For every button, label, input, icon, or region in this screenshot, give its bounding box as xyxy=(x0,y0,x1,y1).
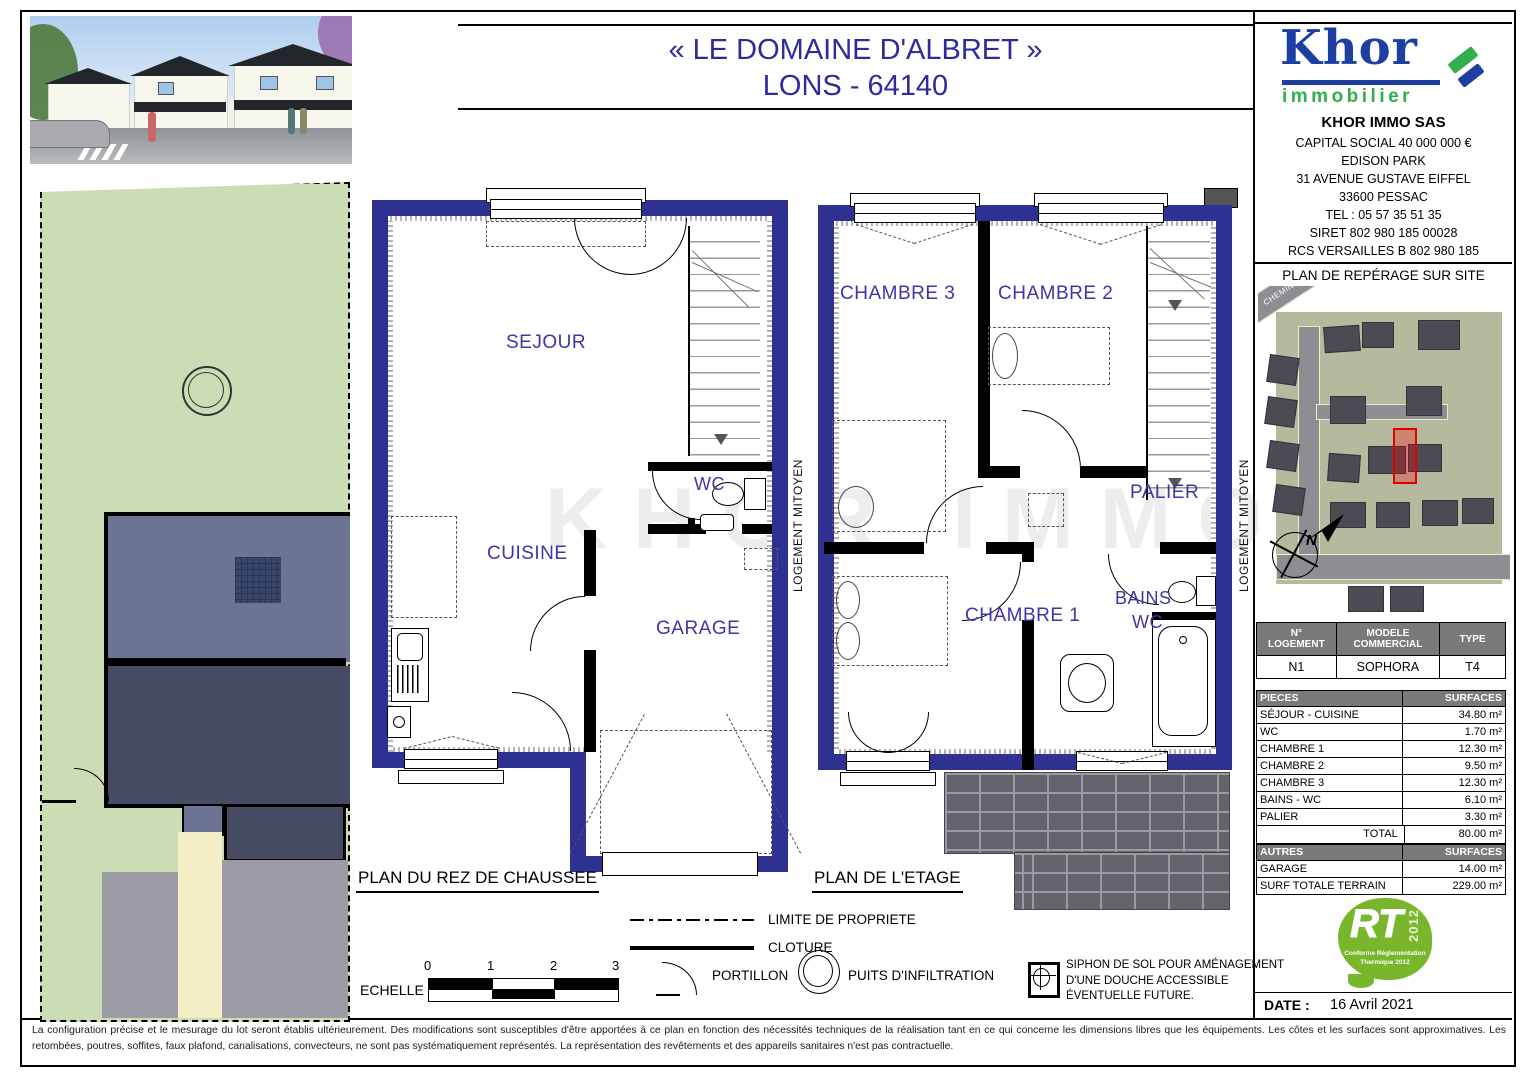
unit-number: N1 xyxy=(1257,656,1337,678)
company-line: CAPITAL SOCIAL 40 000 000 € xyxy=(1255,136,1512,150)
appliance xyxy=(387,706,411,738)
piece-surface: 1.70 m² xyxy=(1403,724,1506,740)
fence-symbol xyxy=(630,946,754,950)
autre-label: GARAGE xyxy=(1257,861,1403,877)
autres-table: AUTRES SURFACES GARAGE14.00 m² SURF TOTA… xyxy=(1256,844,1506,895)
development-render-photo xyxy=(30,16,352,164)
company-line: EDISON PARK xyxy=(1255,154,1512,168)
toilet-tank xyxy=(744,478,766,510)
wall-segment xyxy=(1160,542,1216,554)
map-house xyxy=(1376,502,1410,528)
date-label: DATE : xyxy=(1264,997,1310,1013)
map-house xyxy=(1348,586,1384,612)
room-label-cuisine: CUISINE xyxy=(487,543,568,565)
rt2012-main: RT xyxy=(1350,902,1403,947)
scale-tick-1: 1 xyxy=(487,958,494,973)
khor-logo: Khor immobilier xyxy=(1262,26,1506,110)
scale-bar xyxy=(428,978,619,1002)
company-line: RCS VERSAILLES B 802 980 185 xyxy=(1255,244,1512,258)
etage-plan-title: PLAN DE L'ETAGE xyxy=(812,868,963,893)
company-line: TEL : 05 57 35 51 35 xyxy=(1255,208,1512,222)
company-line: SIRET 802 980 185 00028 xyxy=(1255,226,1512,240)
site-map-title: PLAN DE REPÉRAGE SUR SITE xyxy=(1255,268,1512,283)
scale-seg xyxy=(492,989,555,999)
company-line: 33600 PESSAC xyxy=(1255,190,1512,204)
bathtub xyxy=(1152,619,1216,747)
map-house xyxy=(1390,586,1424,612)
map-house xyxy=(1266,440,1300,472)
wall-segment xyxy=(570,752,586,872)
stair-arrow xyxy=(1168,300,1182,311)
piece-surface: 12.30 m² xyxy=(1403,741,1506,757)
total-label: TOTAL xyxy=(1257,826,1405,843)
window xyxy=(260,76,278,90)
unit-table: N°LOGEMENT MODELECOMMERCIAL TYPE N1 SOPH… xyxy=(1256,622,1506,679)
map-house xyxy=(1272,484,1306,516)
kitchen-window xyxy=(404,749,498,769)
sink-bowl xyxy=(397,633,423,661)
floorplan-document: « LE DOMAINE D'ALBRET » LONS - 64140 KHO… xyxy=(0,0,1527,1079)
map-house xyxy=(1327,453,1361,483)
scale-tick-3: 3 xyxy=(612,958,619,973)
pillow xyxy=(838,486,874,528)
piece-surface: 3.30 m² xyxy=(1403,809,1506,825)
ch1-window xyxy=(846,751,930,771)
piece-label: SÉJOUR - CUISINE xyxy=(1257,707,1403,723)
cupboard-dashed xyxy=(1028,493,1064,527)
washbasin xyxy=(1060,654,1114,712)
pieces-table: PIECES SURFACES SÉJOUR - CUISINE34.80 m²… xyxy=(1256,690,1506,844)
unit-type: T4 xyxy=(1440,656,1506,678)
hdr: MODELE xyxy=(1337,628,1439,639)
autres-header: AUTRES xyxy=(1257,845,1403,860)
project-city: LONS - 64140 xyxy=(458,70,1253,103)
room-label-bains-wc: WC xyxy=(1132,612,1163,633)
party-wall-label: LOGEMENT MITOYEN xyxy=(791,459,805,592)
pillow xyxy=(836,581,860,619)
house-roof xyxy=(130,56,230,76)
map-house xyxy=(1362,322,1394,348)
rt2012-tail xyxy=(1348,974,1374,988)
window-sill xyxy=(398,770,504,784)
map-house xyxy=(1330,396,1366,424)
scale-seg xyxy=(555,979,618,989)
scale-tick-2: 2 xyxy=(550,958,557,973)
insulation-hatch xyxy=(767,221,772,752)
map-house xyxy=(1264,396,1298,428)
project-title: « LE DOMAINE D'ALBRET » xyxy=(458,34,1253,67)
drain xyxy=(1179,636,1187,644)
siphon-line1: SIPHON DE SOL POUR AMÉNAGEMENT xyxy=(1066,958,1284,974)
wall-segment xyxy=(648,524,706,534)
infiltration-well-inner xyxy=(188,372,224,408)
car xyxy=(30,120,110,148)
map-house xyxy=(1406,386,1442,416)
well-symbol-inner xyxy=(803,955,833,987)
compass-line xyxy=(1281,530,1308,578)
utility-dashed xyxy=(744,548,778,570)
fixture-dot xyxy=(688,518,695,525)
room-label-ch3: CHAMBRE 3 xyxy=(840,283,955,305)
map-house xyxy=(1418,320,1460,350)
map-house xyxy=(1266,354,1300,386)
kitchen-counter-dashed xyxy=(391,516,457,618)
company-name: KHOR IMMO SAS xyxy=(1255,114,1512,131)
surfaces-header: SURFACES xyxy=(1403,691,1506,706)
stair-arrow xyxy=(714,434,728,445)
wall-segment xyxy=(1022,542,1034,562)
wall-segment xyxy=(372,200,388,768)
scale-tick-0: 0 xyxy=(424,958,431,973)
unit-header-logement: N°LOGEMENT xyxy=(1257,623,1337,655)
garage-footprint xyxy=(224,804,346,862)
khor-logo-underline xyxy=(1282,80,1440,85)
khor-logo-sub: immobilier xyxy=(1282,86,1413,108)
map-house xyxy=(1462,498,1494,524)
piece-label: CHAMBRE 1 xyxy=(1257,741,1403,757)
hdr: N° xyxy=(1257,628,1336,639)
rt2012-sub2: Thermique 2012 xyxy=(1338,959,1432,966)
scale-seg xyxy=(429,979,492,989)
scale-seg xyxy=(429,989,492,999)
toilet-icon xyxy=(1168,581,1196,603)
person xyxy=(288,108,295,134)
window xyxy=(316,76,334,90)
piece-surface: 6.10 m² xyxy=(1403,792,1506,808)
wall-segment xyxy=(648,462,772,471)
floor-drain-symbol xyxy=(1028,962,1060,998)
scale-label: ECHELLE : xyxy=(360,982,432,998)
rdc-plan-title: PLAN DU REZ DE CHAUSSEE xyxy=(356,868,599,893)
room-label-garage: GARAGE xyxy=(656,618,740,640)
piece-label: CHAMBRE 3 xyxy=(1257,775,1403,791)
hdr: COMMERCIAL xyxy=(1337,639,1439,650)
legend-limite: LIMITE DE PROPRIETE xyxy=(768,912,916,927)
map-house xyxy=(1323,325,1361,353)
garage-door xyxy=(602,852,758,876)
pieces-header: PIECES xyxy=(1257,691,1403,706)
front-window xyxy=(490,199,642,219)
toilet-tank xyxy=(1196,576,1216,606)
property-line-symbol xyxy=(630,919,754,921)
room-label-ch2: CHAMBRE 2 xyxy=(998,283,1113,305)
kitchen-sink-unit xyxy=(391,628,429,702)
wall-segment xyxy=(584,650,596,752)
piece-label: WC xyxy=(1257,724,1403,740)
total-value: 80.00 m² xyxy=(1405,826,1506,843)
wall-segment xyxy=(742,524,772,534)
piece-label: CHAMBRE 2 xyxy=(1257,758,1403,774)
floor-drain-circle xyxy=(1033,968,1050,987)
piece-surface: 34.80 m² xyxy=(1403,707,1506,723)
hdr: LOGEMENT xyxy=(1257,639,1336,650)
wall-segment xyxy=(1216,205,1232,770)
party-wall-label: LOGEMENT MITOYEN xyxy=(1237,459,1251,592)
roof-tiles xyxy=(1014,852,1230,910)
wall-segment xyxy=(978,466,1020,478)
legend-portillon: PORTILLON xyxy=(712,968,788,983)
wall-line xyxy=(104,658,346,666)
room-label-sejour: SEJOUR xyxy=(506,332,586,354)
infiltration-well xyxy=(182,366,232,416)
room-label-wc: WC xyxy=(694,474,725,495)
room-label-palier: PALIER xyxy=(1130,482,1199,504)
title-rule-bottom xyxy=(458,108,1253,110)
wall-segment xyxy=(584,530,596,596)
room-label-ch1: CHAMBRE 1 xyxy=(965,605,1080,627)
date-rule xyxy=(1255,992,1512,993)
person xyxy=(300,108,307,134)
window xyxy=(158,82,174,95)
autres-surfaces-header: SURFACES xyxy=(1403,845,1506,860)
company-line: 31 AVENUE GUSTAVE EIFFEL xyxy=(1255,172,1512,186)
piece-surface: 12.30 m² xyxy=(1403,775,1506,791)
unit-model: SOPHORA xyxy=(1337,656,1440,678)
hdr: TYPE xyxy=(1459,634,1485,645)
section-rule xyxy=(1255,262,1512,264)
khor-logo-main: Khor xyxy=(1280,20,1418,76)
unit-header-type: TYPE xyxy=(1440,623,1506,655)
piece-label: PALIER xyxy=(1257,809,1403,825)
lot-site-plan xyxy=(40,182,350,1022)
wall-segment xyxy=(1080,466,1146,478)
driveway-left xyxy=(102,872,178,1018)
basin-bowl xyxy=(1068,663,1106,703)
legend-puits: PUITS D'INFILTRATION xyxy=(848,968,994,983)
unit-header-modele: MODELECOMMERCIAL xyxy=(1337,623,1440,655)
house-footprint-lower xyxy=(104,666,350,808)
title-rule-top xyxy=(458,24,1253,26)
rt2012-sub1: Conforme Réglementation xyxy=(1338,950,1432,957)
site-location-map: CHEMIN DE LASGOURGES N xyxy=(1258,286,1510,618)
floor-drain-cross xyxy=(1028,975,1056,976)
siphon-line2: D'UNE DOUCHE ACCESSIBLE xyxy=(1066,974,1284,990)
room-label-bains: BAINS xyxy=(1115,588,1172,609)
wall-segment xyxy=(1022,620,1034,770)
siphon-note: SIPHON DE SOL POUR AMÉNAGEMENT D'UNE DOU… xyxy=(1066,958,1284,1005)
staircase xyxy=(1146,226,1210,500)
autre-surface: 14.00 m² xyxy=(1403,861,1506,877)
window-sill xyxy=(840,772,936,786)
rt2012-logo: RT 2012 Conforme Réglementation Thermiqu… xyxy=(1338,898,1432,986)
roof-tiles xyxy=(944,772,1230,854)
ch3-window xyxy=(854,203,976,223)
house-footprint-upper xyxy=(104,512,350,662)
highlighted-lot xyxy=(1393,428,1417,484)
autre-surface: 229.00 m² xyxy=(1403,878,1506,894)
map-house xyxy=(1422,500,1458,526)
scale-seg xyxy=(555,989,618,999)
staircase xyxy=(688,226,760,456)
wall-segment xyxy=(986,542,1022,554)
pillow xyxy=(992,333,1018,379)
walk-path xyxy=(178,832,222,1018)
pillow xyxy=(836,622,860,660)
scale-seg xyxy=(492,979,555,989)
piece-label: BAINS - WC xyxy=(1257,792,1403,808)
awning xyxy=(134,102,226,112)
siphon-line3: ÉVENTUELLE FUTURE. xyxy=(1066,989,1284,1005)
date-value: 16 Avril 2021 xyxy=(1330,997,1414,1013)
wall-segment xyxy=(772,200,788,872)
appliance-knob xyxy=(393,716,405,728)
disclaimer-text: La configuration précise et le mesurage … xyxy=(32,1023,1506,1054)
driveway-right xyxy=(222,860,348,1018)
fence-wall xyxy=(42,800,76,803)
well-symbol xyxy=(798,950,840,994)
autre-label: SURF TOTALE TERRAIN xyxy=(1257,878,1403,894)
rt2012-year: 2012 xyxy=(1406,909,1421,942)
hand-basin xyxy=(700,514,734,531)
person xyxy=(148,112,156,142)
north-label: N xyxy=(1306,532,1317,549)
wall-segment xyxy=(824,542,924,554)
piece-surface: 9.50 m² xyxy=(1403,758,1506,774)
drainer xyxy=(397,665,421,693)
gate-symbol-base xyxy=(656,994,680,996)
ch2-window xyxy=(1038,203,1164,223)
skylight-grid xyxy=(235,557,281,603)
